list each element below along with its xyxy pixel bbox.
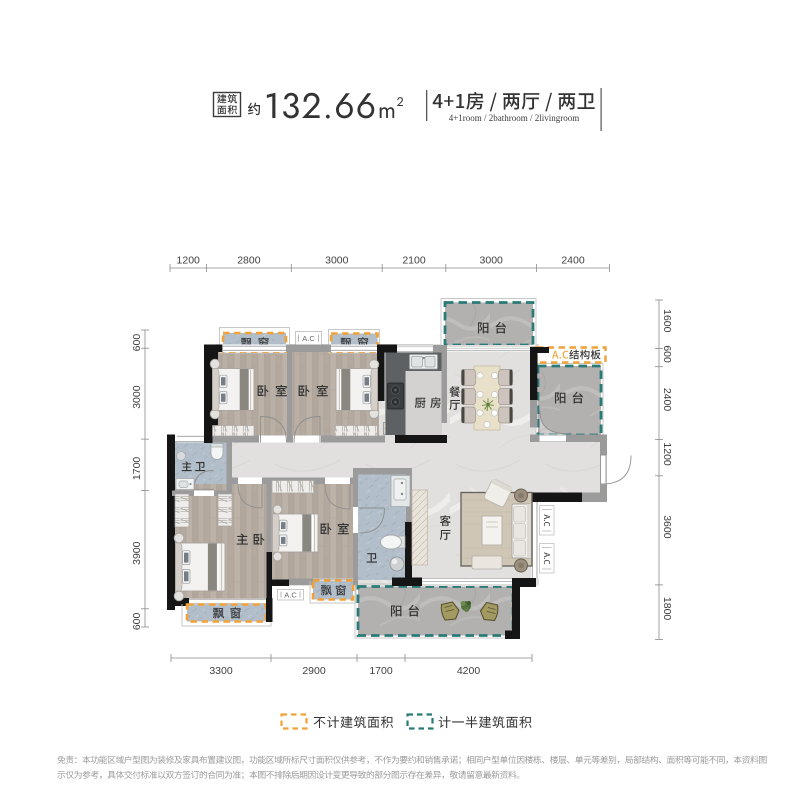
svg-text:2400: 2400 xyxy=(661,388,673,412)
svg-text:A.C: A.C xyxy=(302,334,315,343)
svg-text:3600: 3600 xyxy=(661,515,673,539)
svg-text:3900: 3900 xyxy=(131,541,143,565)
svg-text:2400: 2400 xyxy=(561,255,585,267)
svg-text:1700: 1700 xyxy=(131,457,143,481)
svg-text:1600: 1600 xyxy=(661,309,673,333)
svg-text:600: 600 xyxy=(131,612,143,630)
svg-text:4+1room / 2bathroom / 2livingr: 4+1room / 2bathroom / 2livingroom xyxy=(449,113,580,123)
svg-text:2100: 2100 xyxy=(402,255,426,267)
svg-text:3000: 3000 xyxy=(480,255,504,267)
svg-text:1200: 1200 xyxy=(177,255,201,267)
svg-text:3300: 3300 xyxy=(209,665,233,677)
svg-text:3000: 3000 xyxy=(325,255,349,267)
svg-text:1800: 1800 xyxy=(661,597,673,621)
svg-text:4200: 4200 xyxy=(457,665,481,677)
svg-text:A.C: A.C xyxy=(284,591,297,600)
svg-text:1700: 1700 xyxy=(369,665,393,677)
svg-text:2900: 2900 xyxy=(302,665,326,677)
svg-text:1200: 1200 xyxy=(661,442,673,466)
svg-text:3000: 3000 xyxy=(131,385,143,409)
svg-text:600: 600 xyxy=(131,334,143,352)
svg-text:600: 600 xyxy=(661,345,673,363)
svg-text:2800: 2800 xyxy=(237,255,261,267)
